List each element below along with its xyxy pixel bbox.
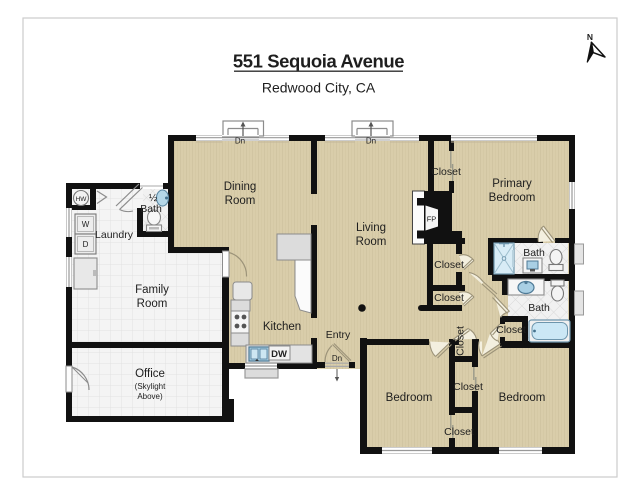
svg-text:Bath: Bath <box>523 247 545 259</box>
svg-text:Dn: Dn <box>235 137 245 146</box>
svg-text:Dn: Dn <box>366 137 376 146</box>
svg-text:551 Sequoia Avenue: 551 Sequoia Avenue <box>233 51 404 72</box>
svg-text:Above): Above) <box>137 392 163 401</box>
svg-text:Closet: Closet <box>444 426 474 438</box>
svg-text:Room: Room <box>137 298 168 310</box>
svg-text:Bedroom: Bedroom <box>489 192 536 204</box>
svg-text:Dining: Dining <box>224 181 257 193</box>
svg-text:Dn: Dn <box>332 354 342 363</box>
svg-text:Primary: Primary <box>492 178 532 190</box>
svg-text:Closet: Closet <box>453 381 483 393</box>
svg-text:Entry: Entry <box>326 329 351 341</box>
svg-text:Laundry: Laundry <box>95 229 134 241</box>
svg-text:DW: DW <box>271 349 287 360</box>
svg-text:Room: Room <box>225 195 256 207</box>
svg-text:FP: FP <box>427 215 437 224</box>
svg-text:Office: Office <box>135 368 165 380</box>
svg-text:Family: Family <box>135 284 169 296</box>
svg-text:HW: HW <box>76 196 88 203</box>
svg-text:Closet: Closet <box>496 324 526 336</box>
svg-text:Bedroom: Bedroom <box>386 392 433 404</box>
svg-text:Bath: Bath <box>140 203 162 215</box>
svg-text:(Skylight: (Skylight <box>135 382 166 391</box>
svg-text:Closet: Closet <box>431 166 461 178</box>
svg-text:W: W <box>82 220 90 229</box>
svg-text:Closet: Closet <box>434 259 464 271</box>
svg-text:Kitchen: Kitchen <box>263 321 301 333</box>
svg-text:Bedroom: Bedroom <box>499 392 546 404</box>
svg-text:Bath: Bath <box>528 302 550 314</box>
svg-text:N: N <box>587 32 593 42</box>
svg-text:Living: Living <box>356 222 386 234</box>
svg-text:Closet: Closet <box>455 326 467 356</box>
svg-text:D: D <box>83 240 89 249</box>
svg-text:Room: Room <box>356 236 387 248</box>
svg-text:Redwood City, CA: Redwood City, CA <box>262 80 376 96</box>
svg-text:Closet: Closet <box>434 292 464 304</box>
